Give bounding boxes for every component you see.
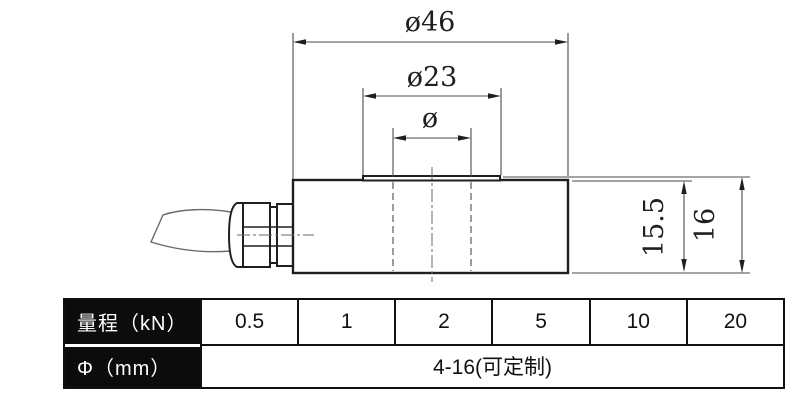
capacity-value-cell: 10 (589, 300, 686, 344)
capacity-value-cell: 0.5 (200, 300, 297, 344)
dim-outer-diameter-label: ø46 (405, 7, 456, 38)
capacity-value-cell: 1 (297, 300, 394, 344)
sensor-body (293, 180, 568, 273)
spec-row-diameter-header: Φ（mm） (65, 344, 200, 388)
dim-body-height-label: 15.5 (639, 197, 670, 257)
dim-total-height-label: 16 (690, 208, 721, 242)
spec-row-capacity-header: 量程（kN） (65, 300, 200, 344)
load-cell-drawing: ø46 ø23 ø 15.5 (0, 0, 799, 296)
dim-boss-diameter-label: ø23 (407, 62, 458, 93)
diameter-value-cell: 4-16(可定制) (200, 344, 783, 388)
dim-body-height (572, 181, 692, 272)
page: ø46 ø23 ø 15.5 (0, 0, 799, 407)
capacity-value-cell: 5 (491, 300, 588, 344)
capacity-value-cell: 2 (394, 300, 491, 344)
cable (151, 210, 231, 252)
spec-table: 量程（kN） 0.5 1 2 5 10 20 Φ（mm） 4-16(可定制) (63, 298, 785, 389)
capacity-value-cell: 20 (686, 300, 783, 344)
dim-hole-diameter-label: ø (422, 103, 438, 134)
